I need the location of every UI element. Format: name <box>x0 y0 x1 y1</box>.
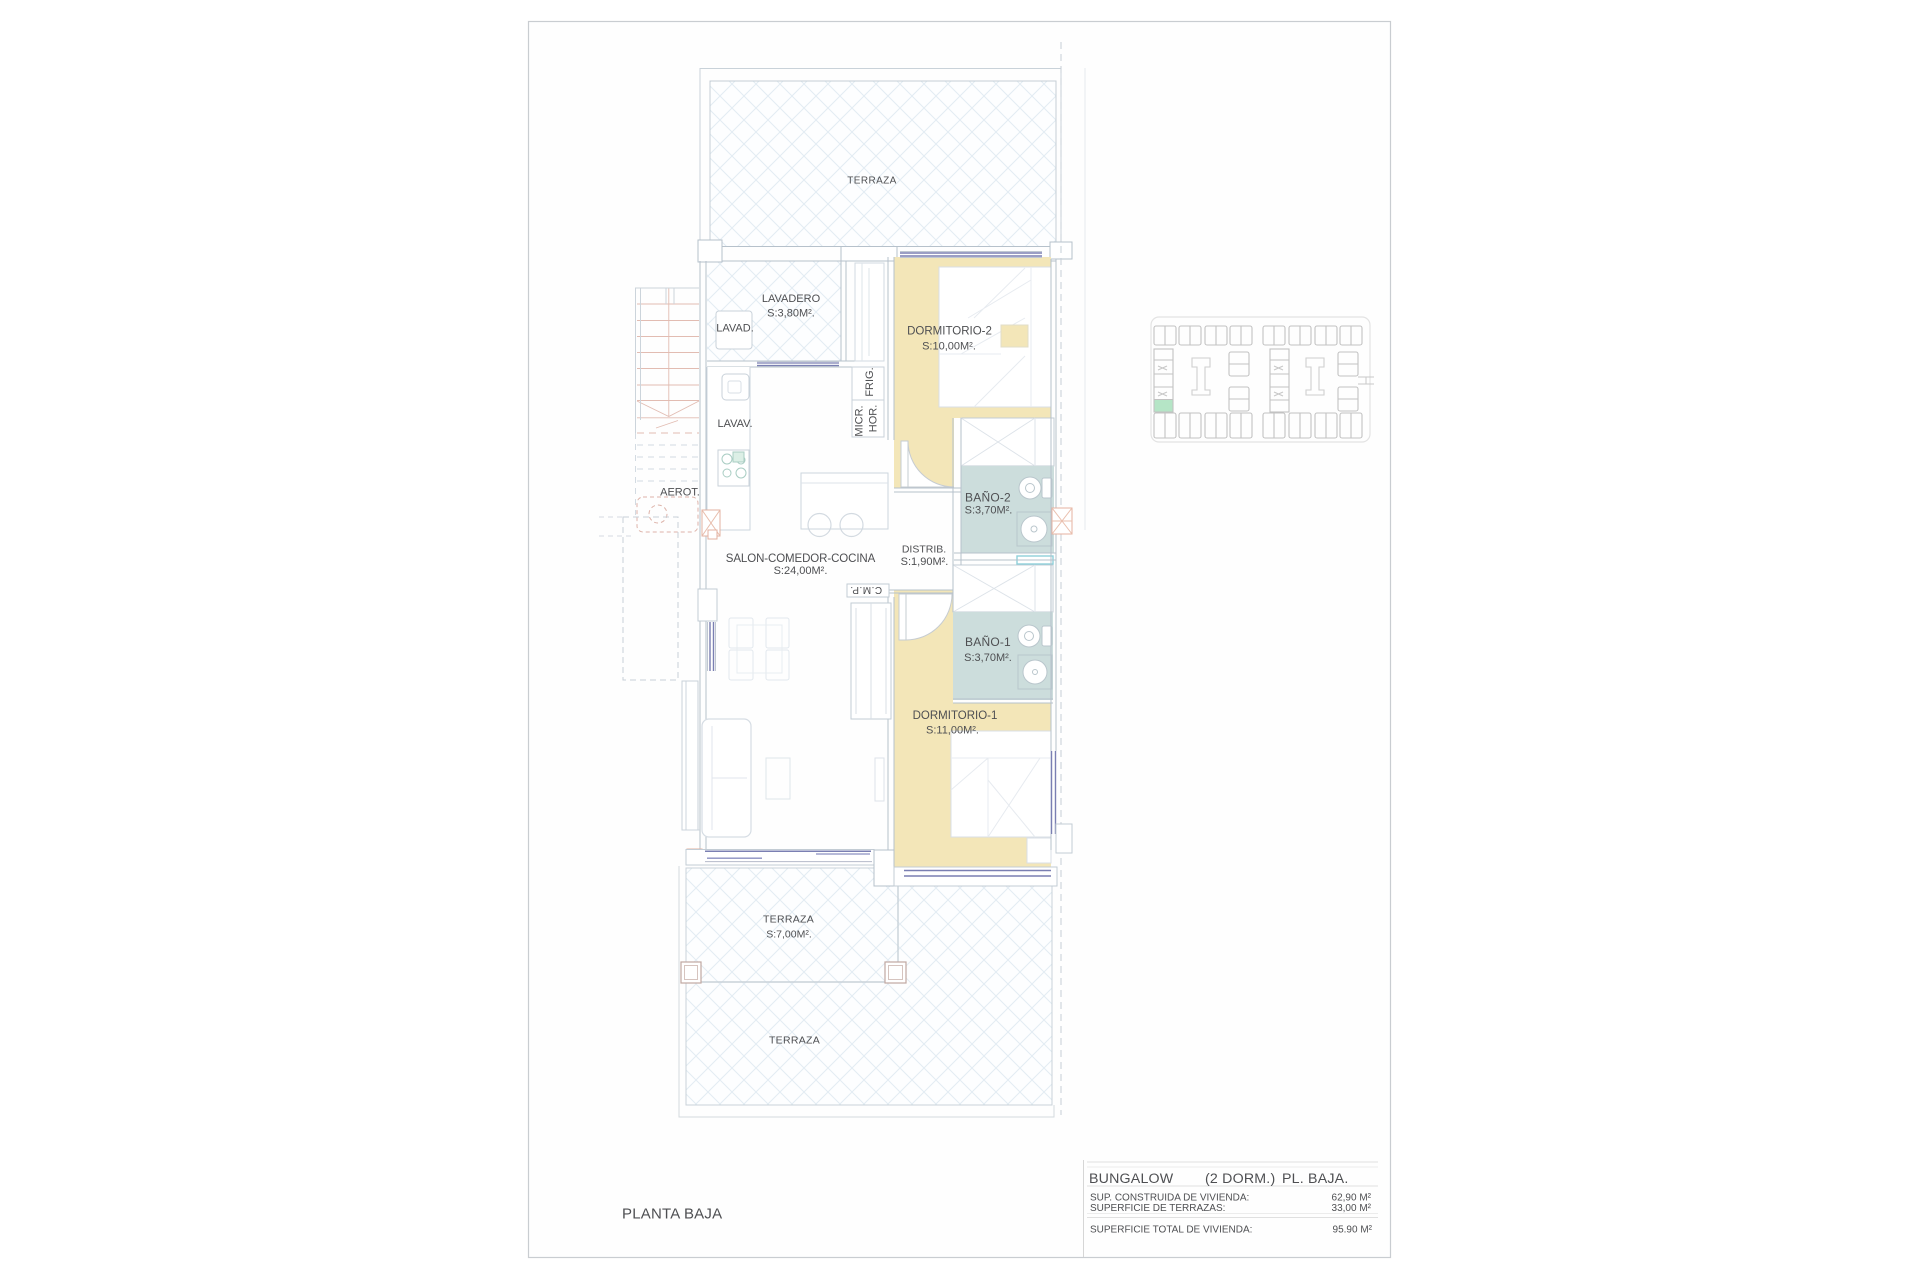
svg-text:S:1,90M².: S:1,90M². <box>901 556 949 568</box>
svg-text:SALON-COMEDOR-COCINA: SALON-COMEDOR-COCINA <box>726 553 876 565</box>
svg-text:BUNGALOW: BUNGALOW <box>1089 1171 1174 1187</box>
svg-text:S:11,00M².: S:11,00M². <box>926 724 979 736</box>
svg-text:S:3,80M².: S:3,80M². <box>767 307 815 319</box>
svg-text:DORMITORIO-2: DORMITORIO-2 <box>907 325 992 337</box>
svg-text:S:10,00M².: S:10,00M². <box>922 340 976 352</box>
svg-text:C.M.P.: C.M.P. <box>850 584 882 595</box>
svg-text:DISTRIB.: DISTRIB. <box>902 543 946 555</box>
svg-text:LAVADERO: LAVADERO <box>762 293 821 305</box>
svg-text:S:3,70M².: S:3,70M². <box>964 652 1012 664</box>
svg-text:BAÑO-2: BAÑO-2 <box>965 491 1011 505</box>
svg-text:HOR.: HOR. <box>868 405 880 433</box>
svg-text:LAVAD.: LAVAD. <box>716 323 754 335</box>
svg-text:TERRAZA: TERRAZA <box>847 176 896 187</box>
svg-text:TERRAZA: TERRAZA <box>769 1034 820 1046</box>
svg-text:AEROT.: AEROT. <box>660 486 700 498</box>
svg-text:PLANTA BAJA: PLANTA BAJA <box>622 1206 722 1223</box>
svg-text:(2 DORM.): (2 DORM.) <box>1205 1171 1275 1187</box>
svg-text:S:7,00M².: S:7,00M². <box>766 928 812 940</box>
svg-text:PL. BAJA.: PL. BAJA. <box>1282 1171 1348 1187</box>
svg-text:95.90 M²: 95.90 M² <box>1333 1225 1373 1236</box>
svg-text:DORMITORIO-1: DORMITORIO-1 <box>913 710 998 722</box>
svg-text:S:24,00M².: S:24,00M². <box>774 565 828 577</box>
svg-text:FRIG.: FRIG. <box>864 367 876 396</box>
svg-text:MICR.: MICR. <box>854 405 866 436</box>
svg-text:LAVAV.: LAVAV. <box>717 418 752 430</box>
svg-text:BAÑO-1: BAÑO-1 <box>965 635 1011 649</box>
svg-text:33,00 M²: 33,00 M² <box>1332 1203 1372 1214</box>
svg-text:S:3,70M².: S:3,70M². <box>965 504 1013 516</box>
svg-text:SUPERFICIE TOTAL DE VIVIENDA:: SUPERFICIE TOTAL DE VIVIENDA: <box>1090 1225 1252 1236</box>
svg-text:TERRAZA: TERRAZA <box>763 913 814 925</box>
svg-text:SUPERFICIE DE TERRAZAS:: SUPERFICIE DE TERRAZAS: <box>1090 1203 1225 1214</box>
